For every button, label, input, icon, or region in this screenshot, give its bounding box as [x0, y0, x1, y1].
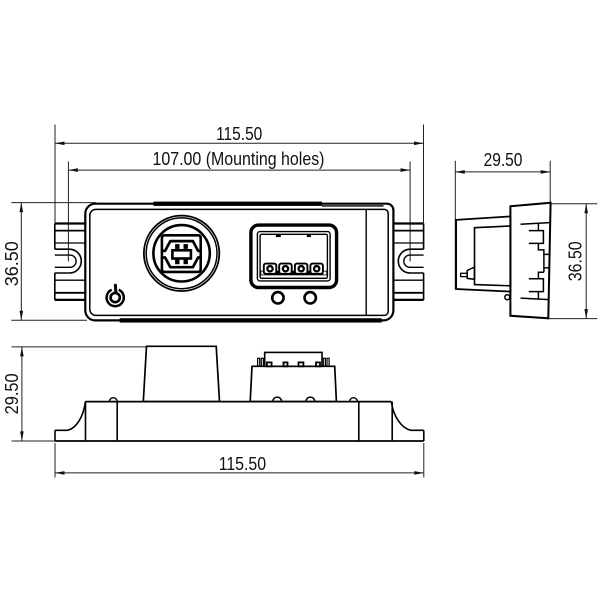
svg-text:115.50: 115.50 [219, 453, 266, 474]
svg-text:36.50: 36.50 [1, 241, 22, 286]
svg-text:29.50: 29.50 [1, 373, 22, 414]
svg-text:115.50: 115.50 [216, 123, 262, 144]
svg-text:107.00 (Mounting holes): 107.00 (Mounting holes) [153, 148, 325, 169]
svg-text:29.50: 29.50 [484, 149, 523, 170]
svg-text:36.50: 36.50 [565, 241, 586, 281]
